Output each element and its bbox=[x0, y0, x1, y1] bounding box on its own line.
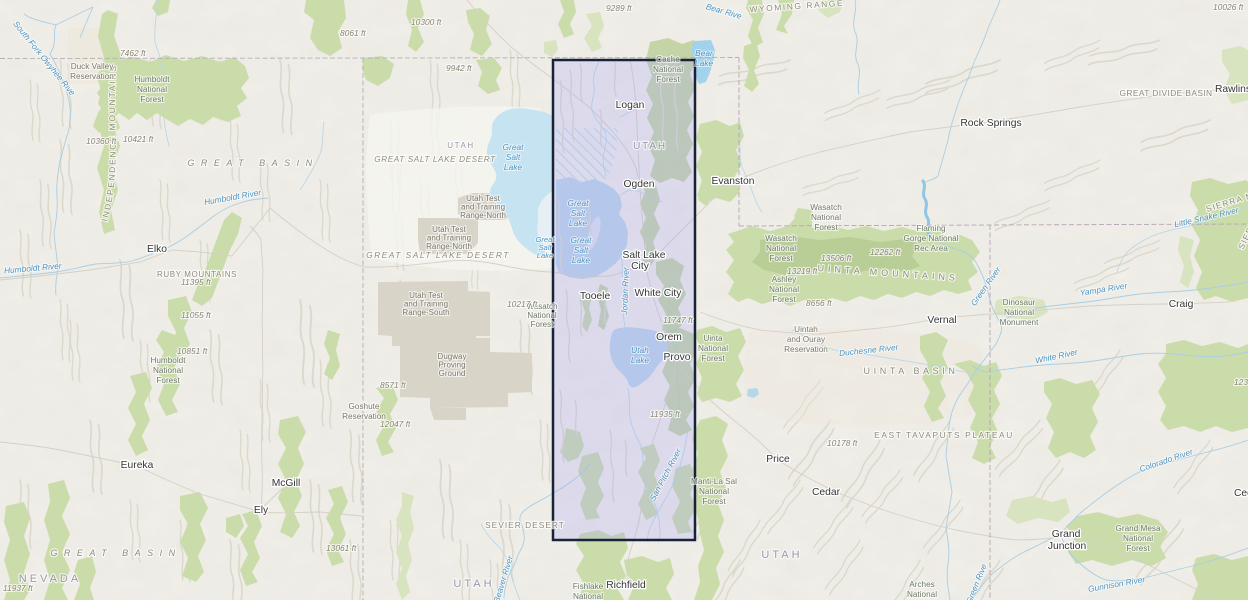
svg-text:UTAH: UTAH bbox=[447, 141, 475, 150]
svg-text:Logan: Logan bbox=[616, 100, 645, 111]
svg-text:McGill: McGill bbox=[272, 478, 301, 489]
svg-text:GREAT SALT LAKE DESERT: GREAT SALT LAKE DESERT bbox=[366, 250, 510, 260]
svg-text:BearLake: BearLake bbox=[695, 48, 714, 68]
svg-text:Junction: Junction bbox=[1048, 541, 1087, 552]
svg-text:8571 ft: 8571 ft bbox=[380, 380, 406, 390]
svg-text:Eureka: Eureka bbox=[121, 460, 154, 471]
svg-text:City: City bbox=[631, 261, 650, 272]
svg-text:Cedar: Cedar bbox=[812, 487, 841, 498]
svg-text:8061 ft: 8061 ft bbox=[340, 28, 366, 38]
svg-text:10360 ft: 10360 ft bbox=[86, 136, 117, 146]
svg-text:13506 ft: 13506 ft bbox=[821, 253, 852, 263]
svg-text:8656 ft: 8656 ft bbox=[806, 298, 832, 308]
svg-text:1234 ft: 1234 ft bbox=[1234, 377, 1248, 387]
svg-text:Tooele: Tooele bbox=[580, 291, 611, 302]
svg-text:12262 ft: 12262 ft bbox=[870, 247, 901, 257]
svg-text:12047 ft: 12047 ft bbox=[380, 419, 411, 429]
svg-text:UINTA BASIN: UINTA BASIN bbox=[864, 366, 959, 376]
svg-text:11395 ft: 11395 ft bbox=[181, 277, 211, 287]
svg-text:Elko: Elko bbox=[147, 244, 167, 255]
svg-text:7462 ft: 7462 ft bbox=[120, 48, 146, 58]
svg-text:11935 ft: 11935 ft bbox=[650, 409, 680, 419]
svg-text:10300 ft: 10300 ft bbox=[411, 17, 442, 27]
svg-text:9289 ft: 9289 ft bbox=[606, 3, 632, 13]
svg-text:10421 ft: 10421 ft bbox=[123, 134, 154, 144]
svg-text:11937 ft: 11937 ft bbox=[3, 583, 33, 593]
svg-text:Evanston: Evanston bbox=[712, 176, 755, 187]
svg-text:Provo: Provo bbox=[664, 352, 691, 363]
svg-text:CacheNationalForest: CacheNationalForest bbox=[653, 55, 683, 84]
svg-text:Utah Testand TrainingRange-Nor: Utah Testand TrainingRange-North bbox=[460, 194, 506, 220]
svg-text:13219 ft: 13219 ft bbox=[787, 266, 818, 276]
svg-text:UtahLake: UtahLake bbox=[631, 345, 650, 365]
svg-text:13061 ft: 13061 ft bbox=[326, 543, 357, 553]
svg-text:EAST TAVAPUTS PLATEAU: EAST TAVAPUTS PLATEAU bbox=[874, 430, 1014, 440]
svg-text:Price: Price bbox=[766, 454, 790, 465]
svg-text:Vernal: Vernal bbox=[927, 315, 956, 326]
svg-text:UTAH: UTAH bbox=[453, 578, 494, 590]
svg-text:Craig: Craig bbox=[1169, 299, 1194, 310]
svg-text:UTAH: UTAH bbox=[761, 549, 802, 561]
svg-text:AshleyNationalForest: AshleyNationalForest bbox=[769, 275, 799, 304]
svg-text:Salt Lake: Salt Lake bbox=[623, 250, 666, 261]
svg-text:ArchesNational: ArchesNational bbox=[907, 580, 937, 599]
svg-text:Rawlins: Rawlins bbox=[1215, 84, 1248, 95]
svg-text:Grand: Grand bbox=[1052, 529, 1081, 540]
svg-text:Utah Testand TrainingRange-Sou: Utah Testand TrainingRange-South bbox=[402, 291, 449, 317]
svg-text:White City: White City bbox=[635, 288, 683, 299]
svg-text:UTAH: UTAH bbox=[633, 141, 667, 152]
svg-text:Utah Testand TrainingRange-Nor: Utah Testand TrainingRange-North bbox=[426, 225, 472, 251]
svg-text:Duck ValleyReservation: Duck ValleyReservation bbox=[70, 62, 114, 81]
svg-text:Jordan River: Jordan River bbox=[619, 266, 631, 316]
svg-text:Orem: Orem bbox=[656, 332, 682, 343]
svg-text:Ely: Ely bbox=[254, 505, 269, 516]
svg-text:10178 ft: 10178 ft bbox=[827, 438, 858, 448]
svg-text:DinosaurNationalMonument: DinosaurNationalMonument bbox=[1000, 298, 1039, 327]
svg-text:WasatchNationalForest: WasatchNationalForest bbox=[810, 203, 842, 232]
svg-text:11055 ft: 11055 ft bbox=[181, 310, 211, 320]
svg-text:GREAT DIVIDE BASIN: GREAT DIVIDE BASIN bbox=[1120, 88, 1213, 98]
svg-text:10026 ft: 10026 ft bbox=[1213, 2, 1244, 12]
svg-text:9942 ft: 9942 ft bbox=[446, 63, 472, 73]
svg-text:10851 ft: 10851 ft bbox=[177, 346, 208, 356]
svg-text:SEVIER DESERT: SEVIER DESERT bbox=[485, 520, 565, 530]
svg-text:Ogden: Ogden bbox=[624, 179, 655, 190]
svg-text:WasatchNationalForest: WasatchNationalForest bbox=[765, 234, 797, 263]
svg-text:GREAT BASIN: GREAT BASIN bbox=[187, 158, 318, 168]
svg-text:Rock Springs: Rock Springs bbox=[960, 118, 1021, 129]
svg-text:Richfield: Richfield bbox=[606, 580, 646, 591]
svg-text:10217 ft: 10217 ft bbox=[507, 299, 538, 309]
svg-text:DugwayProvingGround: DugwayProvingGround bbox=[438, 352, 467, 378]
svg-text:11747 ft: 11747 ft bbox=[663, 315, 693, 325]
svg-text:GREAT BASIN: GREAT BASIN bbox=[50, 548, 181, 558]
svg-text:Ceda: Ceda bbox=[1234, 488, 1248, 499]
svg-text:GREAT SALT LAKE DESERT: GREAT SALT LAKE DESERT bbox=[374, 155, 496, 164]
